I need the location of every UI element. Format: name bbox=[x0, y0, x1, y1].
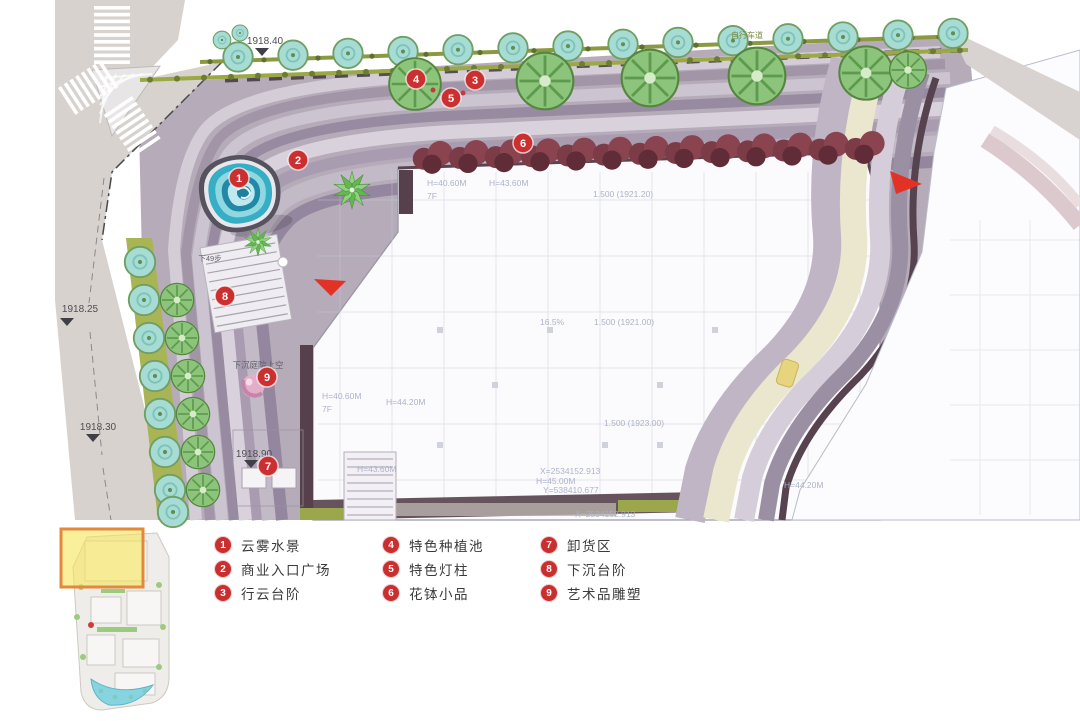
building-label: H=40.60M bbox=[322, 391, 361, 401]
legend-number-icon: 8 bbox=[541, 561, 557, 577]
plan-marker: 6 bbox=[513, 133, 533, 153]
svg-text:9: 9 bbox=[264, 372, 270, 384]
legend-label: 商业入口广场 bbox=[241, 559, 331, 579]
svg-text:3: 3 bbox=[472, 75, 478, 87]
legend-item: 3行云台阶 bbox=[215, 583, 301, 603]
legend-label: 特色灯柱 bbox=[409, 559, 469, 579]
svg-text:1918.25: 1918.25 bbox=[62, 304, 99, 315]
legend-item: 6花钵小品 bbox=[383, 583, 469, 603]
building-label: H=43.60M bbox=[489, 178, 528, 188]
legend-number-icon: 5 bbox=[383, 561, 399, 577]
legend-label: 下沉台阶 bbox=[567, 559, 627, 579]
legend-label: 云雾水景 bbox=[241, 535, 301, 555]
area-label: 自行车道 bbox=[731, 30, 763, 40]
svg-text:7: 7 bbox=[265, 461, 271, 473]
legend-number-icon: 6 bbox=[383, 585, 399, 601]
building-label: H=43.60M bbox=[357, 464, 396, 474]
legend-label: 艺术品雕塑 bbox=[567, 583, 642, 603]
legend-number-icon: 2 bbox=[215, 561, 231, 577]
building-label: 16.5% bbox=[540, 317, 565, 327]
legend-label: 行云台阶 bbox=[241, 583, 301, 603]
svg-text:1918.40: 1918.40 bbox=[247, 36, 284, 47]
area-label: 下沉庭院上空 bbox=[232, 360, 283, 370]
building-label: H=40.60M bbox=[427, 178, 466, 188]
legend-label: 特色种植池 bbox=[409, 535, 484, 555]
building-label: Y=538410.677 bbox=[543, 485, 599, 495]
building-label: 1.500 (1921.20) bbox=[593, 189, 653, 199]
building-label: 7F bbox=[322, 404, 332, 414]
legend-number-icon: 9 bbox=[541, 585, 557, 601]
svg-text:4: 4 bbox=[413, 74, 420, 86]
site-plan: H=40.60M7FH=43.60M1.500 (1921.20)16.5%1.… bbox=[0, 0, 1080, 530]
legend-item: 1云雾水景 bbox=[215, 535, 301, 555]
legend-item: 5特色灯柱 bbox=[383, 559, 469, 579]
building-label: 7F bbox=[427, 191, 437, 201]
building-label: 1.500 (1921.00) bbox=[594, 317, 654, 327]
legend-item: 8下沉台阶 bbox=[541, 559, 627, 579]
legend-item: 7卸货区 bbox=[541, 535, 612, 555]
building-label: X=2534152.913 bbox=[540, 466, 601, 476]
plan-marker: 4 bbox=[406, 69, 426, 89]
svg-text:2: 2 bbox=[295, 155, 301, 167]
building-edge-band bbox=[399, 170, 413, 214]
plan-marker: 9 bbox=[257, 367, 277, 387]
legend-item: 2商业入口广场 bbox=[215, 559, 331, 579]
legend-item: 4特色种植池 bbox=[383, 535, 484, 555]
svg-text:1: 1 bbox=[236, 173, 242, 185]
svg-text:5: 5 bbox=[448, 93, 454, 105]
plan-marker: 5 bbox=[441, 88, 461, 108]
plan-marker: 7 bbox=[258, 456, 278, 476]
building-edge-band bbox=[300, 345, 313, 520]
minimap-red-dot bbox=[88, 622, 94, 628]
site-plan-svg: H=40.60M7FH=43.60M1.500 (1921.20)16.5%1.… bbox=[0, 0, 1080, 530]
svg-text:1918.30: 1918.30 bbox=[80, 422, 117, 433]
svg-text:6: 6 bbox=[520, 138, 526, 150]
minimap-svg bbox=[57, 527, 185, 721]
building-label: H=44.20M bbox=[386, 397, 425, 407]
building-label: X=2534152.913 bbox=[575, 509, 636, 519]
loading-ramp bbox=[344, 452, 396, 520]
legend-item: 9艺术品雕塑 bbox=[541, 583, 642, 603]
minimap bbox=[57, 527, 185, 721]
plan-marker: 3 bbox=[465, 70, 485, 90]
area-label: 下49步 bbox=[198, 254, 222, 263]
page: H=40.60M7FH=43.60M1.500 (1921.20)16.5%1.… bbox=[0, 0, 1080, 721]
plan-marker: 8 bbox=[215, 286, 235, 306]
legend-label: 花钵小品 bbox=[409, 583, 469, 603]
legend-number-icon: 7 bbox=[541, 537, 557, 553]
building-label: H=44.20M bbox=[784, 480, 823, 490]
plan-marker: 2 bbox=[288, 150, 308, 170]
svg-text:8: 8 bbox=[222, 291, 228, 303]
sunken-steps bbox=[200, 234, 292, 332]
legend-number-icon: 3 bbox=[215, 585, 231, 601]
minimap-highlight bbox=[61, 529, 143, 587]
legend-number-icon: 1 bbox=[215, 537, 231, 553]
plan-marker: 1 bbox=[229, 168, 249, 188]
building-label: 1.500 (1923.00) bbox=[604, 418, 664, 428]
legend-label: 卸货区 bbox=[567, 535, 612, 555]
legend-number-icon: 4 bbox=[383, 537, 399, 553]
